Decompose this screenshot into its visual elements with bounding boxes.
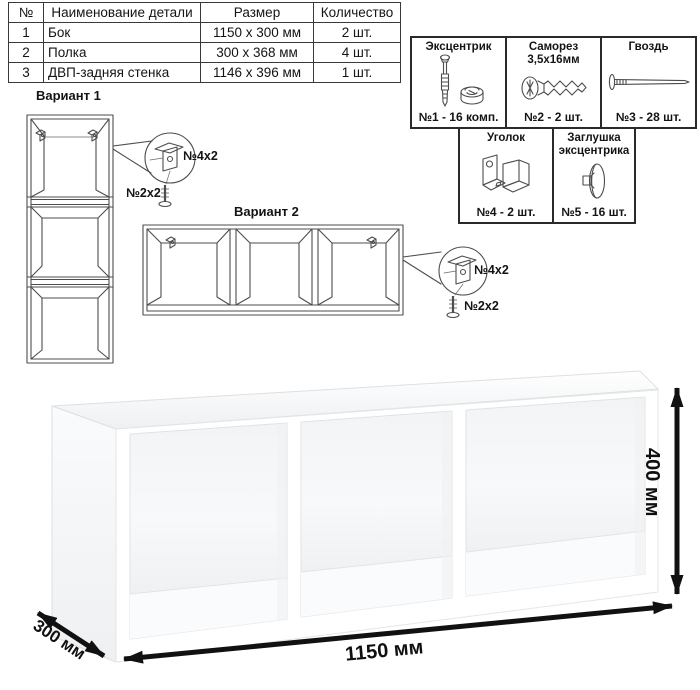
shelf-cell	[466, 397, 645, 596]
shelf-cell	[130, 423, 287, 639]
shelf-cell	[301, 411, 452, 617]
height-dimension-label: 400 мм	[640, 448, 663, 517]
shelf-3d-render	[0, 0, 700, 690]
